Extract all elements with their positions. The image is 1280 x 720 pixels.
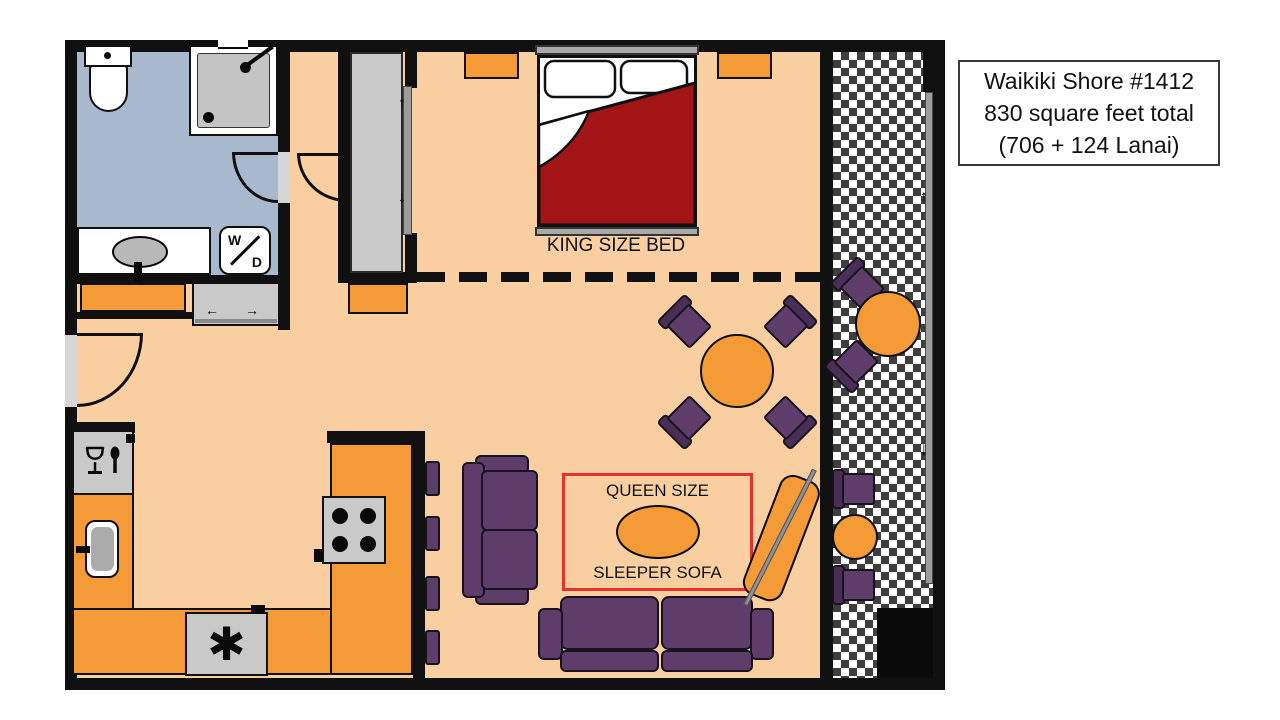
bedroom-partition-dashed-wall xyxy=(417,272,820,282)
slide-right-icon: → xyxy=(245,303,259,317)
stove-burner xyxy=(332,508,348,524)
closet-wall-bottom xyxy=(338,272,417,283)
loveseat xyxy=(462,455,540,605)
entry-counter-wall xyxy=(65,312,192,319)
lanai-chair xyxy=(832,469,876,509)
slide-left-icon: ← xyxy=(205,303,219,317)
sleeper-sofa-label: SLEEPER SOFA xyxy=(593,563,722,583)
title-line-1: Waikiki Shore #1412 xyxy=(984,65,1194,97)
bar-stool xyxy=(425,630,440,665)
lanai-corner-block xyxy=(877,608,933,678)
bathroom-door-opening xyxy=(278,152,290,203)
nightstand-right xyxy=(717,52,772,79)
sofa-seat-front xyxy=(661,650,753,672)
outer-wall-right xyxy=(933,40,945,690)
closet-wall-right-top xyxy=(405,40,417,88)
dishwasher-latch xyxy=(126,434,135,443)
king-bed-label: KING SIZE BED xyxy=(530,235,702,257)
lanai-slide-down-icon: ↓ xyxy=(919,440,929,459)
appliance-asterisk: ✱ xyxy=(185,612,268,676)
outer-wall-bottom xyxy=(65,678,945,690)
dresser xyxy=(348,283,408,314)
sofa-arm-left xyxy=(538,608,563,660)
queen-sleeper-marker: QUEEN SIZE SLEEPER SOFA xyxy=(562,473,753,591)
bedroom-closet xyxy=(350,52,403,273)
loveseat-cushion xyxy=(481,529,538,590)
stove-burner xyxy=(332,536,348,552)
loveseat-cushion xyxy=(481,470,538,531)
lanai-sliding-door xyxy=(925,92,933,584)
asterisk-icon: ✱ xyxy=(207,621,246,667)
king-bed xyxy=(537,55,697,227)
closet-slide-up-icon: ↑ xyxy=(398,96,406,112)
bar-stool xyxy=(425,516,440,551)
title-box: Waikiki Shore #1412 830 square feet tota… xyxy=(958,60,1220,166)
lanai-chair xyxy=(832,565,876,605)
king-bed-headboard xyxy=(535,45,699,55)
sofa-back-cushion xyxy=(560,596,659,650)
dryer-letter: D xyxy=(252,254,262,270)
shower-drain xyxy=(203,112,214,123)
lanai-bistro-table-small xyxy=(832,514,878,560)
queen-size-label: QUEEN SIZE xyxy=(606,481,709,501)
lanai-corner-wall xyxy=(923,40,945,92)
sofa-back-cushion xyxy=(661,596,753,650)
dining-table xyxy=(700,334,774,408)
shower-vent-notch xyxy=(218,40,248,49)
washer-letter: W xyxy=(228,232,241,248)
entry-counter xyxy=(80,283,186,312)
bar-stool xyxy=(425,461,440,496)
toilet-bowl xyxy=(89,65,128,112)
kitchen-faucet xyxy=(76,546,90,553)
entry-closet-track xyxy=(195,319,277,323)
outer-wall-left-upper xyxy=(65,40,77,335)
sofa-arm-right xyxy=(750,608,774,660)
toilet-flush-button xyxy=(104,52,111,59)
wine-glass-and-spoon-icon xyxy=(82,443,126,483)
kitchen-island-wall-top xyxy=(327,431,425,443)
title-line-2: 830 square feet total xyxy=(984,97,1194,129)
stove-burner xyxy=(360,536,376,552)
lanai-bistro-table-large xyxy=(855,291,921,357)
stove-handle xyxy=(314,549,323,562)
sofa-seat-front xyxy=(560,650,659,672)
stove-burner xyxy=(360,508,376,524)
bathroom-wall-right-upper xyxy=(278,52,290,152)
washer-dryer: W D xyxy=(219,226,271,275)
title-line-3: (706 + 124 Lanai) xyxy=(999,129,1180,161)
lanai-slide-up-icon: ↑ xyxy=(919,188,929,207)
king-bed-pillow-left xyxy=(545,61,615,97)
kitchen-sink-basin xyxy=(91,527,114,571)
sofa xyxy=(538,594,774,676)
kitchen-island-wall-right xyxy=(413,431,425,678)
bar-stool xyxy=(425,576,440,611)
entry-door-opening xyxy=(65,335,77,407)
appliance-latch xyxy=(251,605,265,613)
ottoman xyxy=(616,505,700,559)
nightstand-left xyxy=(464,52,519,79)
closet-slide-down-icon: ↓ xyxy=(398,190,406,206)
stove xyxy=(322,496,386,564)
